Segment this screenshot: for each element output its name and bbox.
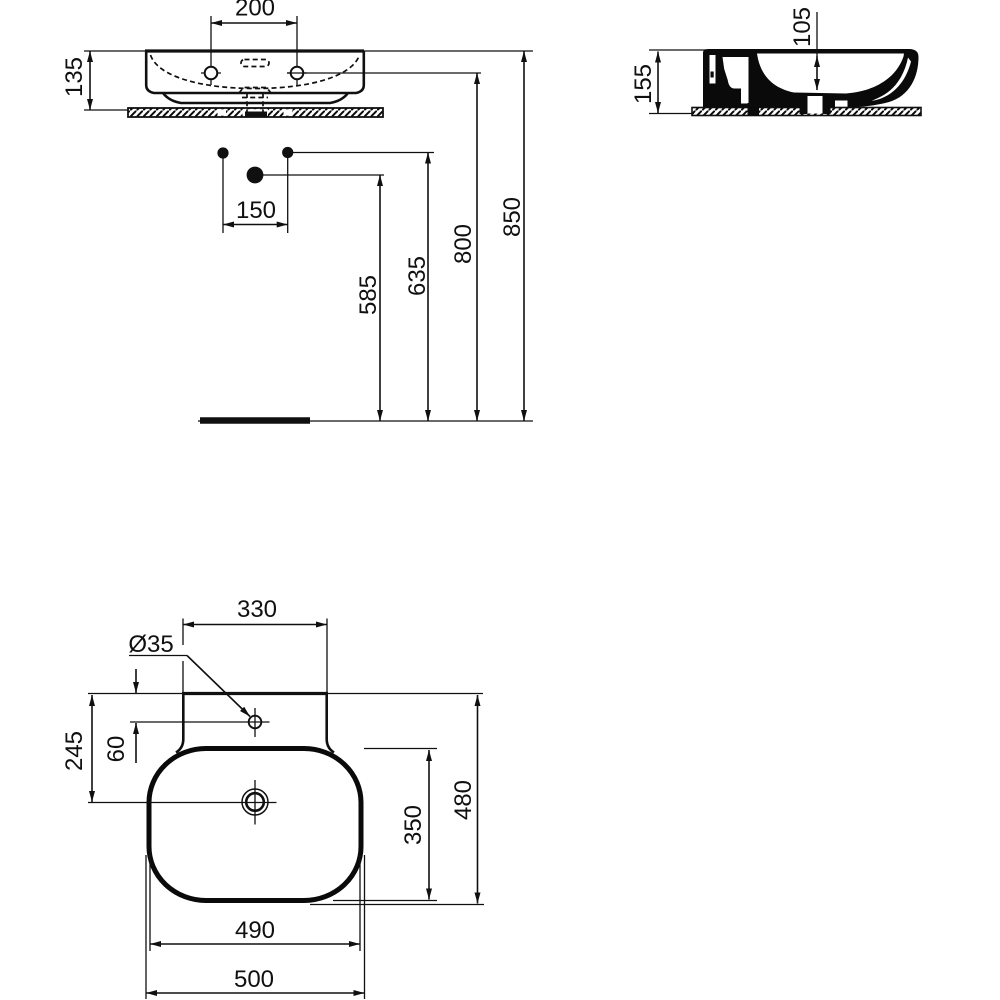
back-ledge-left-edge (176, 695, 183, 753)
wall-hatch-bar (128, 108, 383, 117)
dim-fixing-spacing-label: 150 (236, 197, 276, 224)
dim-480-label: 480 (450, 780, 477, 820)
dim-585-label: 585 (355, 275, 382, 315)
taphole-diameter-label: Ø35 (128, 631, 173, 658)
dim-155-label: 155 (630, 64, 657, 104)
back-ledge-right-edge (327, 695, 334, 753)
front-view: 200 135 150 585 635 800 850 (61, 0, 533, 421)
leader-arrow-line (187, 656, 250, 717)
dim-350-label: 350 (400, 805, 427, 845)
taphole-left (205, 67, 218, 80)
dim-105-label: 105 (789, 7, 816, 47)
drawing-canvas: 200 135 150 585 635 800 850 155 105 (0, 0, 1000, 1000)
dim-245-label: 245 (61, 731, 88, 771)
dim-60-label: 60 (103, 736, 130, 763)
plan-view: 330 Ø35 245 60 350 480 490 500 (61, 596, 484, 999)
overflow-slot (241, 60, 269, 67)
fixing-hole-left-dot (217, 147, 228, 158)
dim-500-label: 500 (234, 966, 274, 993)
dim-800-label: 800 (450, 224, 477, 264)
drain-wall-right (823, 94, 831, 114)
dim-490-label: 490 (235, 917, 275, 944)
technical-drawing-washbasin: 200 135 150 585 635 800 850 155 105 (0, 0, 1000, 1000)
dim-850-label: 850 (499, 197, 526, 237)
dim-basin-height-label: 135 (61, 57, 88, 97)
bracket-detail (711, 72, 714, 78)
dim-330-label: 330 (237, 596, 277, 623)
dim-taphole-spacing-label: 200 (235, 0, 275, 22)
dim-635-label: 635 (404, 256, 431, 296)
basin-plinth (163, 93, 348, 103)
section-foot (748, 103, 760, 116)
drain-opening (808, 96, 823, 114)
side-view: 155 105 (630, 7, 921, 116)
drain-wall-left (800, 94, 808, 114)
